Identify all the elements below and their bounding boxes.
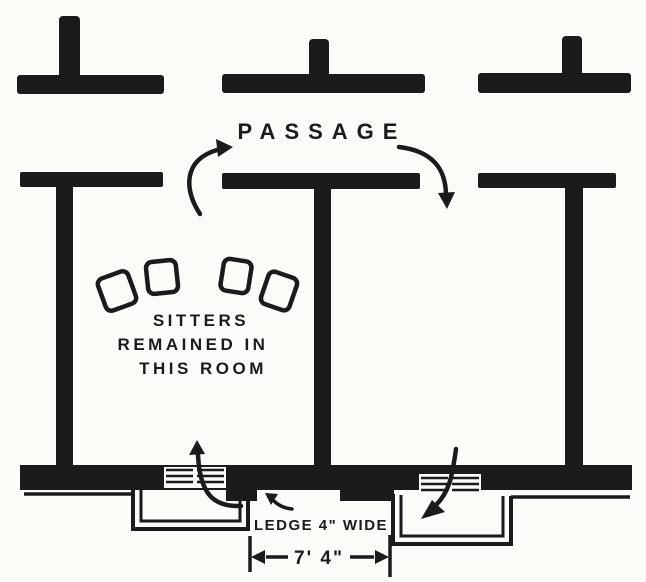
bay-inner-outline [401, 495, 503, 536]
sitters-note-line2: REMAINED IN [118, 335, 269, 354]
sitter-chairs [96, 258, 299, 312]
ledge-arrow-group [265, 493, 292, 509]
wall-stub-up [562, 36, 582, 78]
arrow-into-passage [189, 150, 217, 214]
outer-wall-bar [20, 465, 632, 490]
sitters-note-line1: SITTERS [153, 311, 249, 330]
ledge-step-right [340, 488, 394, 501]
left-room-wall [56, 184, 73, 468]
middle-room-wall [314, 186, 331, 468]
arrow-into-passage-head-icon [216, 139, 233, 157]
dimension-group: 7' 4" [250, 535, 390, 577]
chair-icon [220, 258, 253, 294]
bottom-outer-wall [20, 465, 632, 501]
chair-icon [145, 260, 178, 295]
wall-stub-up [59, 16, 80, 80]
chair-icon [259, 270, 298, 312]
dimension-arrow-left-icon [251, 550, 265, 564]
wall-segment [17, 75, 164, 94]
passage-label: PASSAGE [238, 119, 407, 144]
right-room-wall [565, 185, 583, 468]
dimension-arrow-right-icon [375, 550, 389, 564]
arrow-through-right-window-head-icon [421, 500, 445, 519]
wall-segment [20, 172, 163, 187]
sitters-note-line3: THIS ROOM [139, 359, 267, 378]
wall-stub-up [309, 39, 329, 79]
wall-segment [478, 73, 631, 93]
right-bay-window [393, 494, 511, 544]
left-window [164, 467, 226, 488]
chair-icon [96, 270, 138, 313]
wall-segment [478, 173, 616, 188]
ledge-label: LEDGE 4" WIDE [254, 517, 388, 534]
arrow-to-ledge [274, 501, 292, 509]
arrow-from-passage-head-icon [438, 192, 455, 209]
room-divider-walls [56, 184, 583, 468]
floor-plan-figure: 7' 4" PASSAGE SITTERS REMAINED IN THIS R… [0, 0, 646, 582]
arrow-through-left-window-head-icon [189, 440, 205, 455]
dimension-label: 7' 4" [294, 548, 344, 569]
upper-wall-row [17, 16, 631, 94]
floor-plan-svg: 7' 4" PASSAGE SITTERS REMAINED IN THIS R… [0, 0, 646, 582]
